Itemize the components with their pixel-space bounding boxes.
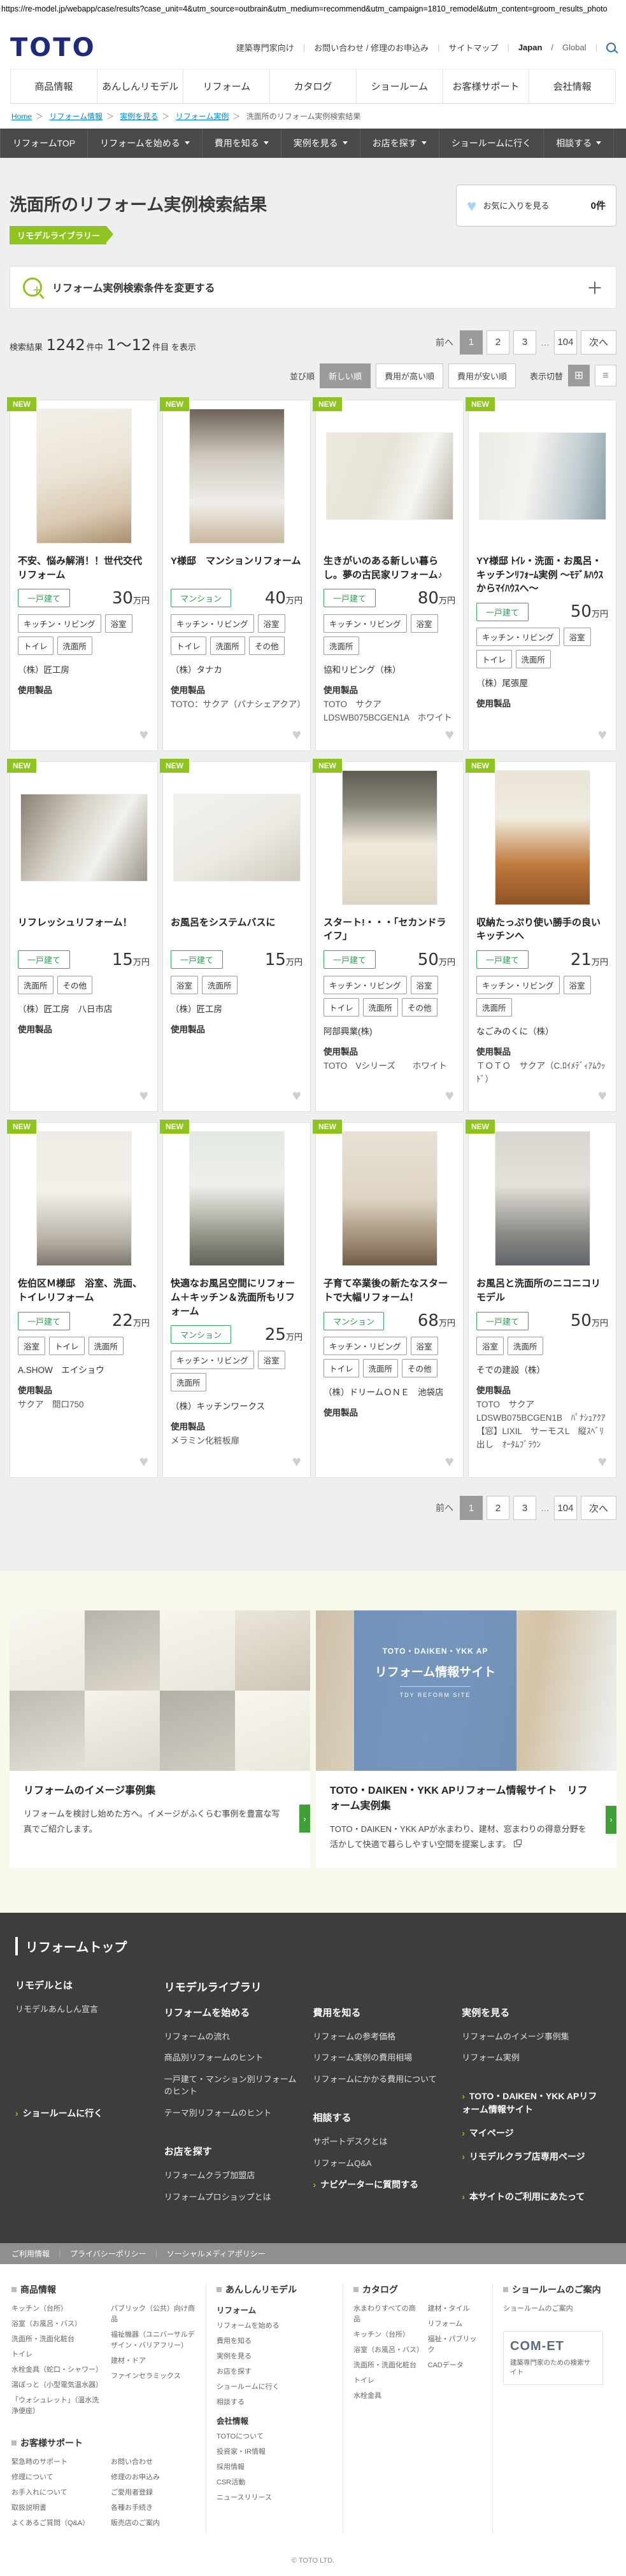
mypage-link[interactable]: ›マイページ [462,2127,599,2140]
company-name[interactable]: 協和リビング（株） [324,663,455,675]
case-card[interactable]: NEW リフレッシュリフォーム！ 一戸建て 15万円 洗面所その他 （株）匠工房… [10,761,158,1113]
footer-link[interactable]: リフォームの参考価格 [313,2031,451,2043]
footer-link[interactable]: キッチン（台所） [11,2304,103,2314]
pagination-page-last[interactable]: 104 [554,1496,577,1520]
banner-title[interactable]: リフォームのイメージ事例集 [24,1784,285,1799]
pagination-ellipsis: … [541,1503,550,1513]
footer-link[interactable]: 湯ぽっと（小型電気温水器） [11,2380,103,2391]
footer-link[interactable]: リフォーム実例 [462,2052,599,2064]
case-price: 25万円 [265,1325,302,1344]
case-photo [173,794,301,882]
pagination-page-3[interactable]: 3 [513,1496,536,1520]
favorites-box[interactable]: ♥ お気に入りを見る 0件 [456,185,616,227]
case-title[interactable]: 収納たっぷり使い勝手の良いキッチンへ [476,916,608,944]
favorite-heart-icon[interactable]: ♥ [445,1087,454,1105]
divider: | [303,43,305,52]
category-tag: その他 [57,976,93,994]
category-tag: キッチン・リビング [476,628,560,646]
category-tag: キッチン・リビング [324,614,407,633]
case-price: 68万円 [418,1311,455,1330]
footer-link[interactable]: 水まわりすべての商品 [353,2304,420,2325]
footer-link[interactable]: リフォーム実例の費用相場 [313,2052,451,2064]
category-tag: 洗面所 [89,1337,124,1355]
new-badge: NEW [313,759,342,773]
category-tags: キッチン・リビング浴室洗面所 [476,976,608,1017]
breadcrumb-reform-info[interactable]: リフォーム情報 [49,112,103,121]
case-photo [342,770,437,905]
company-name[interactable]: （株）匠工房 八日市店 [18,1002,150,1015]
case-title[interactable]: 佐伯区Ｍ様邸 浴室、洗面、トイレリフォーム [18,1277,150,1305]
case-card[interactable]: NEW 収納たっぷり使い勝手の良いキッチンへ 一戸建て 21万円 キッチン・リビ… [468,761,616,1113]
company-name[interactable]: （株）尾張屋 [476,676,608,689]
case-price: 80万円 [418,589,455,608]
products-list: ＴＯＴＯ サクア（C.ﾛｲﾒﾃﾞｨｱﾑｳｯﾄﾞ） [476,1060,608,1087]
footer-link[interactable]: トイレ [11,2349,103,2360]
know-cost-heading[interactable]: 費用を知る [313,2006,451,2019]
results-total: 1242 [46,336,85,354]
breadcrumb-separator: ＞ [162,112,169,121]
pagination-ellipsis: … [541,337,550,348]
favorite-heart-icon[interactable]: ♥ [598,1087,607,1105]
category-tag: 洗面所 [18,976,53,994]
divider: | [595,43,597,52]
pagination-page-2[interactable]: 2 [487,330,509,355]
site-usage-link[interactable]: ›本サイトのご利用にあたって [462,2190,599,2204]
breadcrumb-see-cases[interactable]: 実例を見る [120,112,158,121]
subnav-shops[interactable]: お店を探す [360,129,439,158]
tdy-site-link[interactable]: ›TOTO・DAIKEN・YKK APリフォーム情報サイト [462,2090,599,2116]
footer-link[interactable]: リモデルあんしん宣言 [15,2003,153,2016]
divider: / [551,43,553,52]
footer-link[interactable]: 取扱説明書 [11,2503,103,2514]
navigator-question-link[interactable]: ›ナビゲーターに質問する [313,2178,451,2192]
footer-link[interactable]: 洗面所・洗面化粧台 [353,2360,420,2371]
property-type-badge: 一戸建て [324,589,376,607]
category-tags: キッチン・リビング浴室トイレ洗面所その他 [324,1337,455,1377]
expand-plus-icon[interactable]: ＋ [587,276,603,299]
chevron-right-icon: › [462,2151,465,2162]
footer-catalog-links-1: 水まわりすべての商品キッチン（台所）浴室（お風呂・バス）洗面所・洗面化粧台トイレ… [353,2304,420,2406]
legal-bar: ご利用情報｜ プライバシーポリシー｜ ソーシャルメディアポリシー [0,2243,626,2264]
footer-link[interactable]: CSR活動 [217,2477,332,2488]
category-tag: 浴室 [564,628,591,646]
category-tag: 洗面所 [210,637,246,655]
footer-link[interactable]: 修理のお申込み [111,2472,196,2483]
external-link-icon [514,1841,520,1847]
company-name[interactable]: 阿部興業(株) [324,1024,455,1037]
results-range: 1〜12 [106,336,151,354]
comet-banner[interactable]: COM-ET 建築専門家のための検索サイト [503,2331,603,2385]
case-card[interactable]: NEW Y様邸 マンションリフォーム マンション 40万円 キッチン・リビング浴… [162,400,311,751]
favorite-heart-icon[interactable]: ♥ [445,1453,454,1471]
category-tag: キッチン・リビング [324,1337,407,1355]
pagination-page-1[interactable]: 1 [460,1496,483,1520]
products-list: TOTO サクアLDSWB075BCGEN1B ﾊﾟﾅｼｭｱｸｱ【窓】LIXIL… [476,1398,608,1452]
tdy-reform-site-banner[interactable]: TOTO・DAIKEN・YKK AP リフォーム情報サイト TDY REFORM… [316,1610,616,1868]
footer-catalog-column: カタログ 水まわりすべての商品キッチン（台所）浴室（お風呂・バス）洗面所・洗面化… [343,2283,492,2534]
category-tag: その他 [402,998,437,1017]
remodel-club-link[interactable]: ›リモデルクラブ店専用ページ [462,2150,599,2164]
case-title[interactable]: 不安、悩み解消！！世代交代リフォーム [18,554,150,582]
divider: ｜ [56,2248,64,2259]
case-title[interactable]: 子育て卒業後の新たなスタートで大幅リフォーム！ [324,1277,455,1305]
footer-link[interactable]: お問い合わせ [111,2457,196,2468]
category-tag: トイレ [171,637,206,655]
sort-newest-button[interactable]: 新しい順 [320,363,371,388]
case-title[interactable]: YY様邸 ﾄｲﾚ・洗面・お風呂・キッチンﾘﾌｫｰﾑ実例 ～ﾓﾃﾞﾙﾊｳｽからﾏｲ… [476,554,608,596]
category-tag: トイレ [476,650,512,668]
footer-reform-subheading[interactable]: リフォーム [217,2304,332,2316]
footer-link[interactable]: 一戸建て・マンション別リフォームのヒント [164,2073,302,2098]
subnav-reform-top[interactable]: リフォームTOP [0,129,87,158]
footer-link[interactable]: 浴室（お風呂・バス） [11,2319,103,2330]
footer-link[interactable]: 実例を見る [217,2351,332,2362]
pagination-page-3[interactable]: 3 [513,330,536,355]
subnav-cost[interactable]: 費用を知る [202,129,281,158]
product-line: 【窓】LIXIL サーモスL 縦ｽﾍﾞﾘ出し ｵｰﾀﾑﾌﾞﾗｳﾝ [476,1425,608,1452]
pagination-top: 前へ 1 2 3 … 104 次へ [436,330,616,355]
legal-privacy-link[interactable]: プライバシーポリシー [70,2248,146,2259]
footer-products-column: 商品情報 キッチン（台所）浴室（お風呂・バス）洗面所・洗面化粧台トイレ水栓金具（… [11,2283,206,2534]
footer-link[interactable]: 各種お手続き [111,2503,196,2514]
footer-link[interactable]: 採用情報 [217,2462,332,2473]
product-line: ＴＯＴＯ サクア（C.ﾛｲﾒﾃﾞｨｱﾑｳｯﾄﾞ） [476,1060,608,1087]
footer-link[interactable]: お店を探す [217,2367,332,2377]
pagination-prev[interactable]: 前へ [436,1502,453,1514]
legal-social-link[interactable]: ソーシャルメディアポリシー [167,2248,266,2259]
subnav-consult[interactable]: 相談する [543,129,614,158]
category-tag: 洗面所 [202,976,238,994]
new-badge: NEW [160,397,189,411]
case-card[interactable]: NEW お風呂をシステムバスに 一戸建て 15万円 浴室洗面所 （株）匠工房 使… [162,761,311,1113]
category-tag: トイレ [49,1337,85,1355]
favorite-heart-icon[interactable]: ♥ [598,1453,607,1471]
new-badge: NEW [313,397,342,411]
breadcrumb-home[interactable]: Home [11,112,32,121]
footer-link[interactable]: 水栓金具 [353,2391,420,2402]
property-type-badge: 一戸建て [18,950,70,969]
new-badge: NEW [7,397,36,411]
nav-item-company[interactable]: 会社情報 [529,69,616,103]
consult-heading[interactable]: 相談する [313,2111,451,2124]
category-tag: 洗面所 [171,1373,206,1391]
chevron-right-icon: › [462,2192,465,2202]
category-tags: キッチン・リビング浴室トイレ洗面所その他 [324,976,455,1017]
favorite-heart-icon[interactable]: ♥ [139,1087,148,1105]
pagination-page-last[interactable]: 104 [554,330,577,355]
grid-view-icon[interactable]: ⊞ [568,365,590,386]
comet-logo: COM-ET [510,2339,596,2354]
product-line: TOTO サクア [324,698,455,712]
chevron-down-icon [596,141,601,144]
footer-link[interactable]: 販売店のご案内 [111,2518,196,2529]
case-card[interactable]: NEW お風呂と洗面所のニコニコリモデル 一戸建て 50万円 浴室洗面所 そでの… [468,1122,616,1478]
footer-support-heading: お客様サポート [11,2437,196,2449]
footer-link[interactable]: リフォームQ&A [313,2157,451,2170]
products-label: 使用製品 [171,1419,302,1432]
favorite-heart-icon[interactable]: ♥ [139,726,148,744]
product-line: サクア 間口750 [18,1398,150,1412]
footer-link[interactable]: よくあるご質問（Q&A） [11,2518,103,2529]
subnav-cases[interactable]: 実例を見る [281,129,360,158]
search-icon[interactable] [606,43,616,52]
main-content: 洗面所のリフォーム実例検索結果 リモデルライブラリー ♥ お気に入りを見る 0件… [0,158,626,1571]
case-photo [495,1131,590,1266]
list-view-icon[interactable]: ≡ [595,365,616,386]
case-title[interactable]: 生きがいのある新しい暮らし。夢の古民家リフォーム♪ [324,554,455,582]
company-name[interactable]: （株）ドリームＯＮＥ 池袋店 [324,1385,455,1398]
products-label: 使用製品 [476,1383,608,1396]
footer-link[interactable]: リフォームプロショップとは [164,2191,302,2204]
case-price: 21万円 [571,950,608,969]
category-tag: 浴室 [411,614,438,633]
new-badge: NEW [7,759,36,773]
property-type-badge: マンション [171,1325,231,1344]
sort-label: 並び順 [290,370,315,382]
case-card[interactable]: NEW 佐伯区Ｍ様邸 浴室、洗面、トイレリフォーム 一戸建て 22万円 浴室トイ… [10,1122,158,1478]
footer-link[interactable]: 緊急時のサポート [11,2457,103,2468]
utility-link-sitemap[interactable]: サイトマップ [448,41,498,53]
pagination-next[interactable]: 次へ [581,1496,616,1520]
case-card[interactable]: NEW 快適なお風呂空間にリフォーム＋キッチン＆洗面所もリフォーム マンション … [162,1122,311,1478]
category-tags: 浴室洗面所 [476,1337,608,1355]
company-name[interactable]: （株）匠工房 [171,1002,302,1015]
footer-link[interactable]: 水栓金具（蛇口・シャワー） [11,2365,103,2375]
footer-link[interactable]: 建材・タイル [428,2304,483,2314]
property-type-badge: 一戸建て [476,950,529,969]
footer-link[interactable]: リフォームを始める [217,2321,332,2332]
breadcrumb-separator: ＞ [36,112,43,121]
property-type-badge: 一戸建て [18,589,70,607]
search-conditions-label: リフォーム実例検索条件を変更する [52,279,576,295]
see-cases-heading[interactable]: 実例を見る [462,2006,599,2019]
product-line: メラミン化粧板扉 [171,1435,302,1448]
reform-top-heading[interactable]: リフォームトップ [15,1937,611,1955]
toto-logo[interactable]: TOTO [10,33,96,62]
footer-link[interactable]: リフォームのイメージ事例集 [462,2031,599,2043]
case-photo [189,1131,285,1266]
footer-link[interactable]: リフォームにかかる費用について [313,2073,451,2086]
find-shop-heading[interactable]: お店を探す [164,2144,302,2158]
case-title[interactable]: お風呂をシステムバスに [171,916,302,944]
favorite-heart-icon[interactable]: ♥ [445,726,454,744]
footer-link[interactable]: リフォームの流れ [164,2031,302,2043]
footer-company-links: TOTOについて投資家・IR情報採用情報CSR活動ニュースリリース [217,2432,332,2503]
footer-link[interactable]: サポートデスクとは [313,2136,451,2148]
company-name[interactable]: A.SHOW エイショウ [18,1363,150,1376]
see-cases-links: リフォームのイメージ事例集リフォーム実例 [462,2031,599,2064]
collage-image [10,1610,310,1771]
pagination-bottom: 前へ 1 2 3 … 104 次へ [436,1496,616,1520]
case-title[interactable]: 快適なお風呂空間にリフォーム＋キッチン＆洗面所もリフォーム [171,1277,302,1318]
product-line: TOTO：サクア（パナシェアクア） [171,698,302,712]
chevron-right-icon: › [313,2179,317,2190]
footer-remodel-heading: あんしんリモデル [217,2283,332,2296]
footer-company-subheading[interactable]: 会社情報 [217,2414,332,2426]
footer-link[interactable]: 商品別リフォームのヒント [164,2052,302,2064]
case-photo [189,409,285,544]
company-name[interactable]: （株）タナカ [171,663,302,675]
case-photo [36,409,132,544]
utility-link-contact[interactable]: お問い合わせ / 修理のお申込み [314,41,429,53]
products-label: 使用製品 [324,1045,455,1057]
new-badge: NEW [466,1120,495,1134]
favorite-heart-icon[interactable]: ♥ [139,1453,148,1471]
category-tag: 洗面所 [516,650,551,668]
case-card[interactable]: NEW スタート!・・・「セカンドライフ」 一戸建て 50万円 キッチン・リビン… [315,761,464,1113]
favorite-heart-icon[interactable]: ♥ [292,1453,301,1471]
remodel-library-heading: リモデルライブラリ [164,1978,302,1994]
favorites-label: お気に入りを見る [483,199,584,211]
footer-link[interactable]: 修理について [11,2472,103,2483]
case-price: 15万円 [112,950,150,969]
start-reform-links: リフォームの流れ商品別リフォームのヒント一戸建て・マンション別リフォームのヒント… [164,2031,302,2120]
footer-showroom-links: ショールームのご案内 [503,2304,603,2314]
case-card[interactable]: NEW 不安、悩み解消！！世代交代リフォーム 一戸建て 30万円 キッチン・リビ… [10,400,158,751]
footer-link[interactable]: ショールームに行く [217,2382,332,2393]
legal-usage-link[interactable]: ご利用情報 [11,2248,50,2259]
chevron-right-icon: › [15,2108,18,2118]
category-tag: 洗面所 [363,998,399,1017]
company-name[interactable]: （株）匠工房 [18,663,150,675]
nav-item-showroom[interactable]: ショールーム [356,69,443,103]
footer-link[interactable]: ファインセラミックス [111,2371,196,2382]
products-label: 使用製品 [324,1405,455,1418]
footer-link[interactable]: 浴室（お風呂・バス） [353,2345,420,2356]
property-type-badge: マンション [171,589,231,607]
case-photo [20,794,148,882]
know-cost-links: リフォームの参考価格リフォーム実例の費用相場リフォームにかかる費用について [313,2031,451,2086]
category-tag: 洗面所 [508,1337,543,1355]
footer-link[interactable]: 福祉・パブリック [428,2334,483,2356]
subnav-showroom[interactable]: ショールームに行く [439,129,544,158]
footer-link[interactable]: ニュースリリース [217,2493,332,2503]
utility-link-pro[interactable]: 建築専門家向け [236,41,294,53]
pagination-prev[interactable]: 前へ [436,336,453,349]
favorite-heart-icon[interactable]: ♥ [292,1087,301,1105]
locale-japan[interactable]: Japan [518,43,543,52]
category-tag: キッチン・リビング [476,976,560,994]
footer-link[interactable]: 建材・ドア [111,2356,196,2367]
company-name[interactable]: （株）キッチンワークス [171,1399,302,1412]
pagination-page-1[interactable]: 1 [460,330,483,355]
divider: | [507,43,509,52]
footer-link[interactable]: 洗面所・洗面化粧台 [11,2334,103,2345]
footer-link[interactable]: 相談する [217,2397,332,2408]
search-conditions-bar[interactable]: ＋ リフォーム実例検索条件を変更する ＋ [10,266,616,309]
footer-link[interactable]: テーマ別リフォームのヒント [164,2107,302,2120]
case-card[interactable]: NEW YY様邸 ﾄｲﾚ・洗面・お風呂・キッチンﾘﾌｫｰﾑ実例 ～ﾓﾃﾞﾙﾊｳｽ… [468,400,616,751]
footer-link[interactable]: TOTOについて [217,2432,332,2442]
products-label: 使用製品 [476,1045,608,1057]
comet-caption: 建築専門家のための検索サイト [510,2358,596,2377]
company-name[interactable]: なごみのくに（株） [476,1024,608,1037]
nav-item-remodel[interactable]: あんしんリモデル [97,69,183,103]
new-badge: NEW [466,759,495,773]
products-label: 使用製品 [171,683,302,696]
footer-showroom-link[interactable]: ›ショールームに行く [15,2107,153,2120]
image-case-collection-banner[interactable]: リフォームのイメージ事例集 リフォームを検討し始めた方へ。イメージがふくらむ事例… [10,1610,310,1868]
footer-link[interactable]: 投資家・IR情報 [217,2447,332,2458]
category-tag: キッチン・リビング [171,1351,254,1369]
footer-link[interactable]: トイレ [353,2375,420,2386]
case-title[interactable]: スタート!・・・「セカンドライフ」 [324,916,455,944]
footer-link[interactable]: ご愛用者登録 [111,2488,196,2498]
favorite-heart-icon[interactable]: ♥ [292,726,301,744]
case-card[interactable]: NEW 生きがいのある新しい暮らし。夢の古民家リフォーム♪ 一戸建て 80万円 … [315,400,464,751]
favorite-heart-icon[interactable]: ♥ [598,726,607,744]
category-tag: 浴室 [171,976,198,994]
footer-link[interactable]: ショールームのご案内 [503,2304,603,2314]
footer-showroom-heading: ショールームのご案内 [503,2283,603,2296]
breadcrumb-current: 洗面所のリフォーム実例検索結果 [246,112,361,121]
case-title[interactable]: お風呂と洗面所のニコニコリモデル [476,1277,608,1305]
footer-link[interactable]: お手入れについて [11,2488,103,2498]
case-photo [36,1131,132,1266]
footer-link[interactable]: パブリック（公共）向け商品 [111,2304,196,2325]
sort-price-low-button[interactable]: 費用が安い順 [448,363,516,388]
chevron-down-icon [422,141,427,144]
footer-support-links-2: お問い合わせ修理のお申込みご愛用者登録各種お手続き販売店のご案内 [111,2457,196,2533]
banner-title[interactable]: TOTO・DAIKEN・YKK APリフォーム情報サイト リフォーム実例集 [330,1784,591,1814]
subnav-start[interactable]: リフォームを始める [87,129,202,158]
footer-link[interactable]: キッチン（台所） [353,2330,420,2340]
case-price: 50万円 [418,950,455,969]
footer-link[interactable]: 「ウォシュレット」（温水洗浄便座） [11,2395,103,2417]
chevron-right-icon[interactable]: › [299,1805,310,1833]
locale-global[interactable]: Global [562,43,587,52]
sort-price-high-button[interactable]: 費用が高い順 [376,363,443,388]
category-tags: 浴室トイレ洗面所 [18,1337,150,1355]
case-title[interactable]: Y様邸 マンションリフォーム [171,554,302,582]
footer-link[interactable]: リフォーム [428,2319,483,2330]
category-tag: 浴室 [258,1351,285,1369]
case-card[interactable]: NEW 子育て卒業後の新たなスタートで大幅リフォーム！ マンション 68万円 キ… [315,1122,464,1478]
category-tag: 浴室 [105,614,132,633]
category-tag: トイレ [324,1359,359,1377]
company-name[interactable]: そでの建設（株） [476,1363,608,1376]
main-nav: 商品情報 あんしんリモデル リフォーム カタログ ショールーム お客様サポート … [10,69,616,104]
pagination-page-2[interactable]: 2 [487,1496,509,1520]
nav-item-catalog[interactable]: カタログ [269,69,356,103]
pagination-next[interactable]: 次へ [581,330,616,355]
footer-products-links-1: キッチン（台所）浴室（お風呂・バス）洗面所・洗面化粧台トイレ水栓金具（蛇口・シャ… [11,2304,103,2421]
nav-item-reform[interactable]: リフォーム [183,69,269,103]
start-reform-heading[interactable]: リフォームを始める [164,2006,302,2019]
nav-item-products[interactable]: 商品情報 [10,69,97,103]
property-type-badge: 一戸建て [476,603,529,621]
case-photo [495,770,590,905]
category-tag: 洗面所 [57,637,93,655]
footer-link[interactable]: CADデータ [428,2360,483,2371]
breadcrumb-separator: ＞ [232,112,240,121]
case-title[interactable]: リフレッシュリフォーム！ [18,916,150,944]
footer-link[interactable]: 福祉機器（ユニバーサルデザイン・バリアフリー） [111,2330,196,2351]
footer-link[interactable]: 費用を知る [217,2336,332,2347]
footer-link[interactable]: リフォームクラブ加盟店 [164,2169,302,2182]
site-footer: 商品情報 キッチン（台所）浴室（お風呂・バス）洗面所・洗面化粧台トイレ水栓金具（… [0,2264,626,2540]
reform-footer: リフォームトップ リモデルとは リモデルあんしん宣言 ›ショールームに行く リモ… [0,1913,626,2243]
breadcrumb-reform-case[interactable]: リフォーム実例 [176,112,229,121]
category-tags: キッチン・リビング浴室洗面所 [324,614,455,655]
nav-item-support[interactable]: お客様サポート [443,69,529,103]
banner-description: TOTO・DAIKEN・YKK APが水まわり、建材、窓まわりの得意分野を活かし… [330,1822,591,1852]
chevron-right-icon[interactable]: › [606,1806,616,1834]
product-line: TOTO サクア [476,1398,608,1412]
chevron-right-icon: › [462,2091,465,2101]
remodel-about-heading: リモデルとは [15,1978,153,1992]
products-list: メラミン化粧板扉 [171,1435,302,1448]
